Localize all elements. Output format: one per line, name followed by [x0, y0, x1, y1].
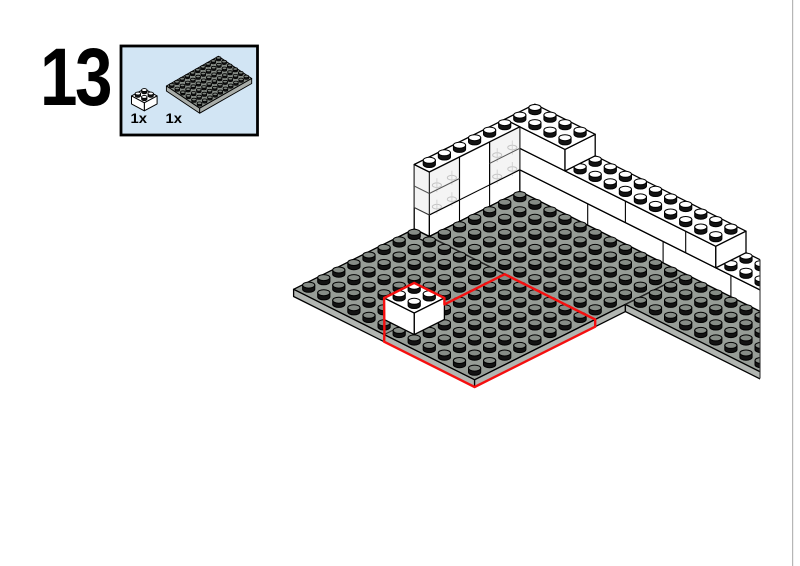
svg-text:13: 13	[40, 32, 110, 123]
svg-text:1x: 1x	[166, 111, 183, 126]
svg-text:1x: 1x	[131, 111, 148, 126]
